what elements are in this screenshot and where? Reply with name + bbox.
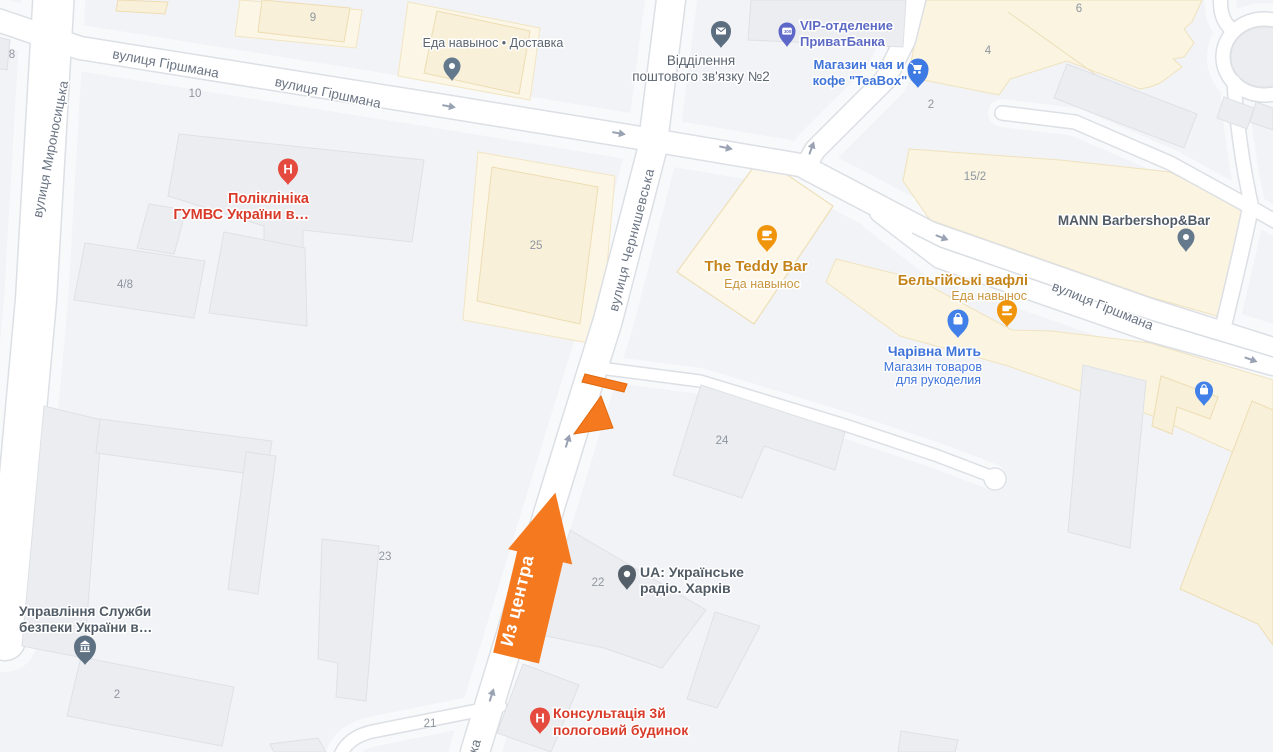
svg-text:радіо. Харків: радіо. Харків [640, 580, 731, 596]
svg-text:Поліклініка: Поліклініка [228, 191, 310, 207]
svg-text:Еда навынос: Еда навынос [724, 277, 800, 291]
svg-text:2: 2 [114, 689, 120, 701]
svg-text:9: 9 [310, 12, 316, 24]
svg-text:24: 24 [716, 435, 729, 447]
svg-text:ПриватБанка: ПриватБанка [800, 34, 886, 49]
svg-text:15/2: 15/2 [964, 171, 986, 183]
svg-text:21: 21 [424, 718, 437, 730]
svg-text:VIP-отделение: VIP-отделение [800, 18, 893, 33]
svg-text:22: 22 [592, 577, 605, 589]
svg-text:MANN Barbershop&Bar: MANN Barbershop&Bar [1058, 213, 1211, 228]
svg-text:The Teddy Bar: The Teddy Bar [704, 258, 807, 275]
svg-text:4/8: 4/8 [117, 279, 133, 291]
svg-text:поштового зв'язку №2: поштового зв'язку №2 [632, 69, 770, 84]
svg-text:10: 10 [189, 88, 202, 100]
svg-text:Чарівна Мить: Чарівна Мить [888, 344, 981, 359]
svg-text:UA: Українське: UA: Українське [640, 564, 744, 580]
svg-text:6: 6 [1076, 3, 1082, 15]
svg-text:Управління Служби: Управління Служби [19, 604, 151, 619]
svg-text:Магазин чая и: Магазин чая и [814, 57, 905, 72]
svg-text:H: H [535, 711, 544, 726]
svg-text:Еда навынос: Еда навынос [951, 289, 1027, 303]
svg-text:25: 25 [530, 240, 543, 252]
svg-text:Еда навынос • Доставка: Еда навынос • Доставка [423, 36, 564, 50]
svg-text:ГУМВС України в…: ГУМВС України в… [173, 207, 309, 223]
svg-text:пологовий будинок: пологовий будинок [553, 722, 689, 738]
svg-text:кофе "TeaBox": кофе "TeaBox" [813, 73, 908, 88]
svg-text:4: 4 [985, 45, 992, 57]
svg-text:300: 300 [784, 29, 792, 34]
svg-text:Магазин товаров: Магазин товаров [884, 360, 983, 374]
svg-text:для рукоделия: для рукоделия [896, 373, 981, 387]
svg-text:Відділення: Відділення [667, 53, 735, 68]
svg-text:8: 8 [9, 49, 15, 61]
svg-text:Консультація 3й: Консультація 3й [553, 705, 666, 721]
svg-text:H: H [283, 162, 292, 177]
svg-text:2: 2 [928, 99, 934, 111]
svg-text:безпеки України в…: безпеки України в… [19, 620, 152, 635]
svg-text:Бельгійські вафлі: Бельгійські вафлі [898, 273, 1028, 289]
svg-text:23: 23 [379, 551, 392, 563]
